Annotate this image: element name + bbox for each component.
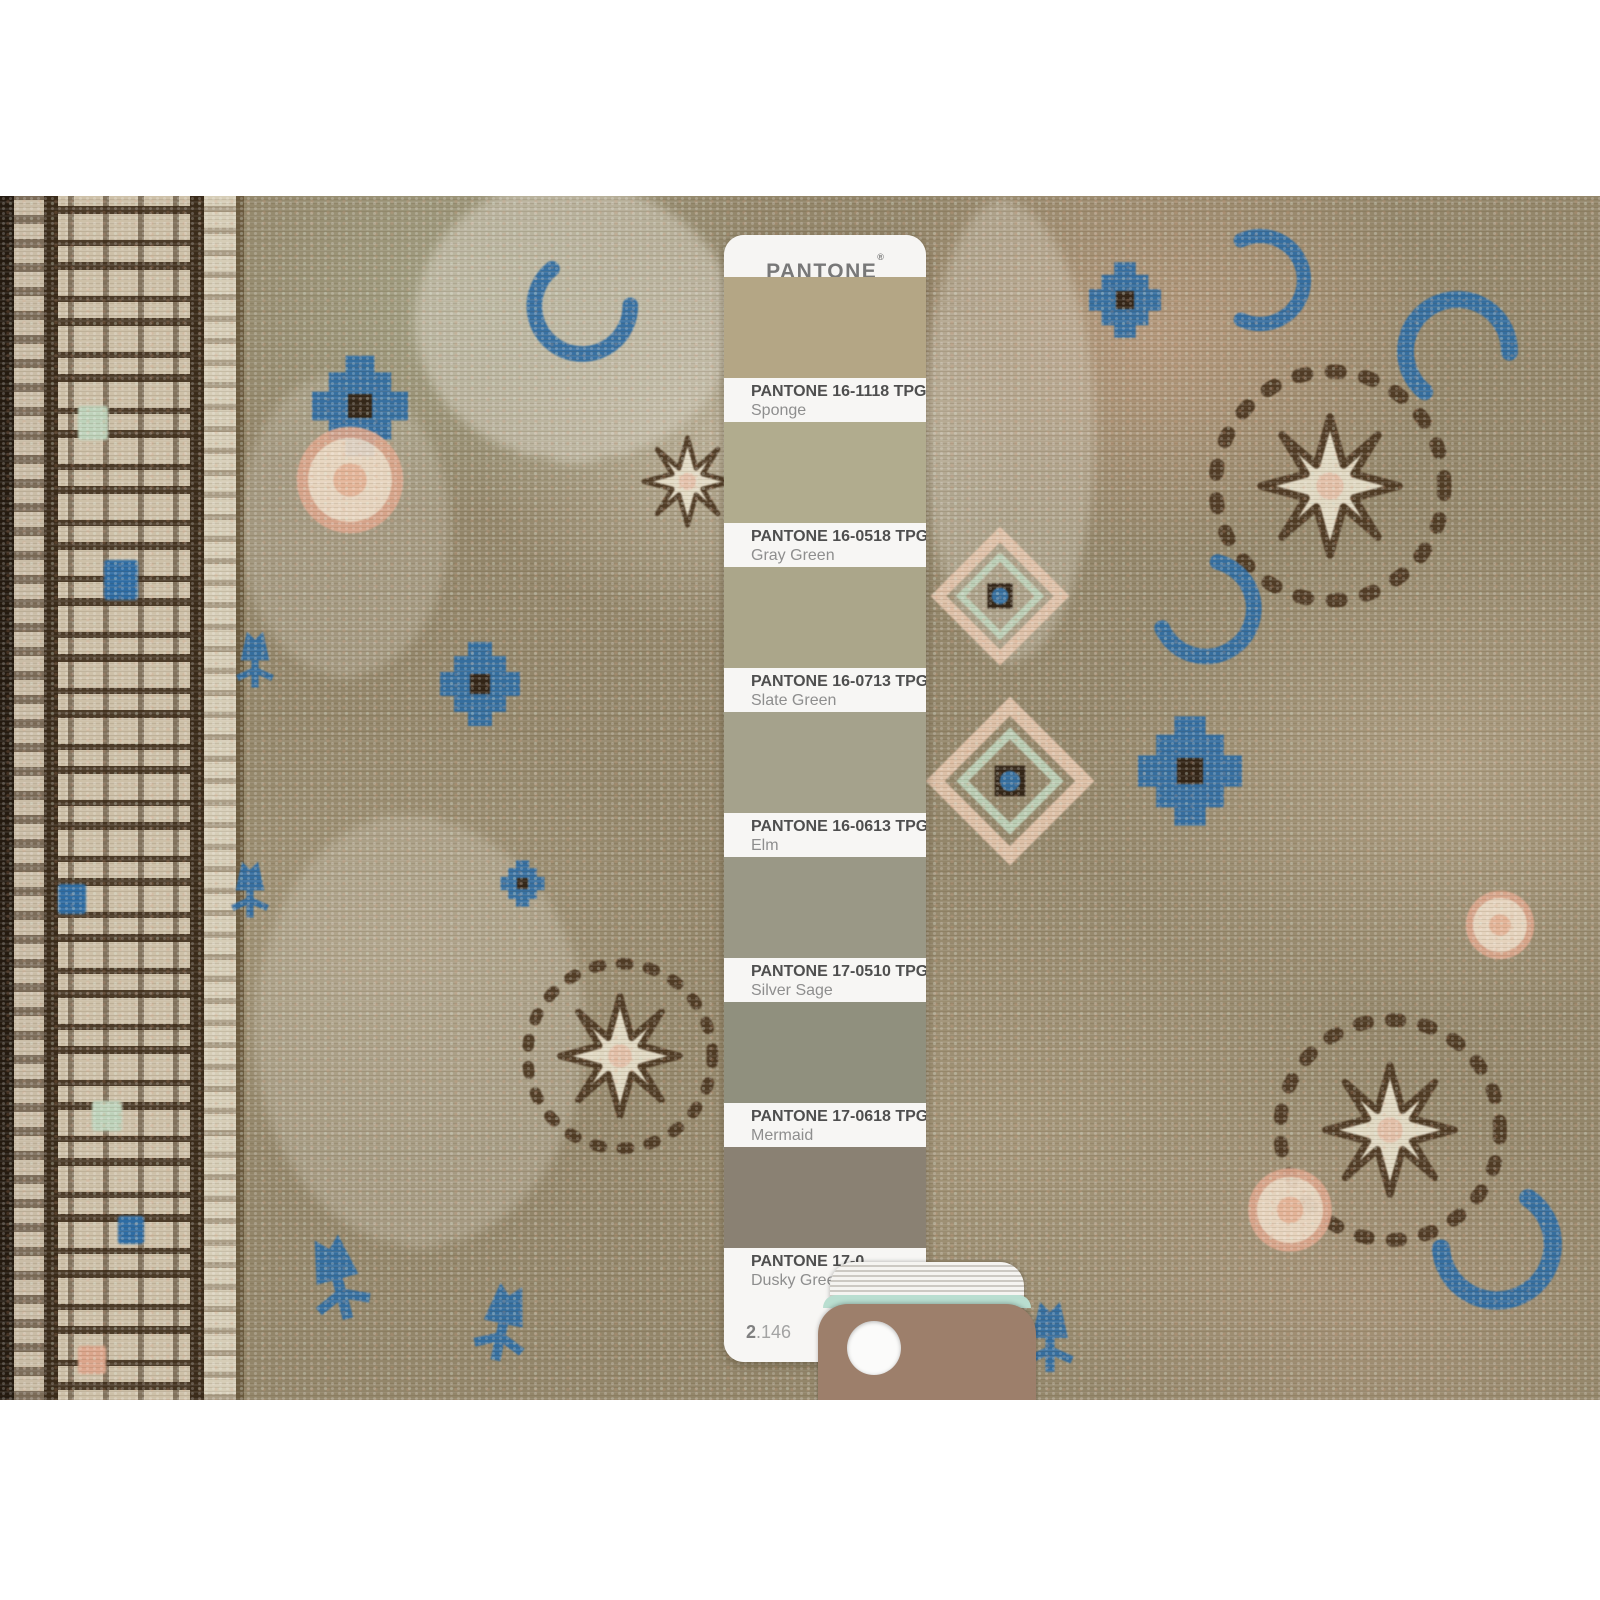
pantone-swatch-gray-green xyxy=(724,422,926,523)
rug-motif-diamond-medallion xyxy=(930,526,1070,666)
rug-motif-blue-chip xyxy=(495,856,550,911)
border-accent-chip xyxy=(118,1216,144,1244)
pantone-fan-deck-stack xyxy=(818,1262,1036,1400)
rug-motif-palmette xyxy=(1235,1155,1345,1265)
bottom-white-margin xyxy=(0,1400,1600,1600)
pantone-swatch-label: PANTONE 16-1118 TPG Sponge xyxy=(724,378,926,422)
rug-motif-blue-step-rosette xyxy=(1080,255,1170,345)
pantone-swatch-mermaid xyxy=(724,1002,926,1103)
swatch-code: PANTONE 17-0618 TPG xyxy=(751,1107,926,1126)
pantone-swatch-label: PANTONE 17-0510 TPG Silver Sage xyxy=(724,958,926,1002)
pantone-swatch-label: PANTONE 16-0713 TPG Slate Green xyxy=(724,668,926,712)
pantone-swatch-sponge xyxy=(724,277,926,378)
page-number-volume: 2 xyxy=(746,1322,756,1342)
border-accent-chip xyxy=(104,560,138,600)
top-white-margin xyxy=(0,0,1600,196)
swatch-code: PANTONE 16-0713 TPG xyxy=(751,672,926,691)
rug-motif-palmette xyxy=(280,410,420,550)
rug-photo: PANTONE® PANTONE 16-1118 TPG Sponge PANT… xyxy=(0,196,1600,1400)
swatch-code: PANTONE 16-0518 TPG xyxy=(751,527,926,546)
pantone-swatch-label: PANTONE 16-0613 TPG Elm xyxy=(724,813,926,857)
rug-motif-ivory-star xyxy=(555,991,685,1121)
border-accent-chip xyxy=(78,406,108,440)
border-inner-line xyxy=(236,196,244,1400)
border-selvedge xyxy=(204,196,236,1400)
border-accent-chip xyxy=(78,1346,106,1374)
swatch-code: PANTONE 16-1118 TPG xyxy=(751,382,926,401)
pantone-swatch-elm xyxy=(724,712,926,813)
swatch-name: Slate Green xyxy=(751,691,926,710)
rug-motif-blue-flower xyxy=(430,634,530,734)
pantone-brand-header: PANTONE® xyxy=(724,235,926,277)
border-guard-stripe xyxy=(14,196,44,1400)
swatch-code: PANTONE 17-0510 TPG xyxy=(751,962,926,981)
rug-motif-diamond-medallion xyxy=(925,696,1095,866)
pantone-swatch-dusky-green xyxy=(724,1147,926,1248)
swatch-name: Gray Green xyxy=(751,546,926,565)
rug-motif-blue-tulip xyxy=(215,614,295,694)
rug-motif-palmette xyxy=(1455,880,1545,970)
screenshot-root: PANTONE® PANTONE 16-1118 TPG Sponge PANT… xyxy=(0,0,1600,1600)
fan-deck-top-card xyxy=(818,1304,1036,1400)
swatch-name: Sponge xyxy=(751,401,926,420)
border-brown-stripe xyxy=(44,196,58,1400)
border-accent-chip xyxy=(92,1101,122,1131)
swatch-name: Silver Sage xyxy=(751,981,926,1000)
rug-border xyxy=(0,196,244,1400)
rug-motif-blue-crescent xyxy=(1210,225,1320,335)
rug-motif-ivory-star xyxy=(640,434,735,529)
rug-motif-ivory-star xyxy=(1255,411,1405,561)
border-outer-stripe xyxy=(0,196,14,1400)
rug-motif-blue-step-rosette xyxy=(1125,706,1255,836)
pantone-swatch-slate-green xyxy=(724,567,926,668)
pantone-swatch-silver-sage xyxy=(724,857,926,958)
pantone-swatch-label: PANTONE 16-0518 TPG Gray Green xyxy=(724,523,926,567)
registered-mark: ® xyxy=(877,252,884,262)
border-accent-chip xyxy=(58,884,86,914)
pantone-color-guide-strip: PANTONE® PANTONE 16-1118 TPG Sponge PANT… xyxy=(724,235,926,1362)
rivet-hole xyxy=(847,1321,901,1375)
page-number-rest: .146 xyxy=(756,1322,791,1342)
swatch-name: Mermaid xyxy=(751,1126,926,1145)
swatch-name: Elm xyxy=(751,836,926,855)
rug-motif-blue-tulip xyxy=(440,1250,570,1380)
swatch-code: PANTONE 16-0613 TPG xyxy=(751,817,926,836)
pantone-swatch-label: PANTONE 17-0618 TPG Mermaid xyxy=(724,1103,926,1147)
border-brown-stripe xyxy=(190,196,204,1400)
rug-motif-blue-tulip xyxy=(210,844,290,924)
